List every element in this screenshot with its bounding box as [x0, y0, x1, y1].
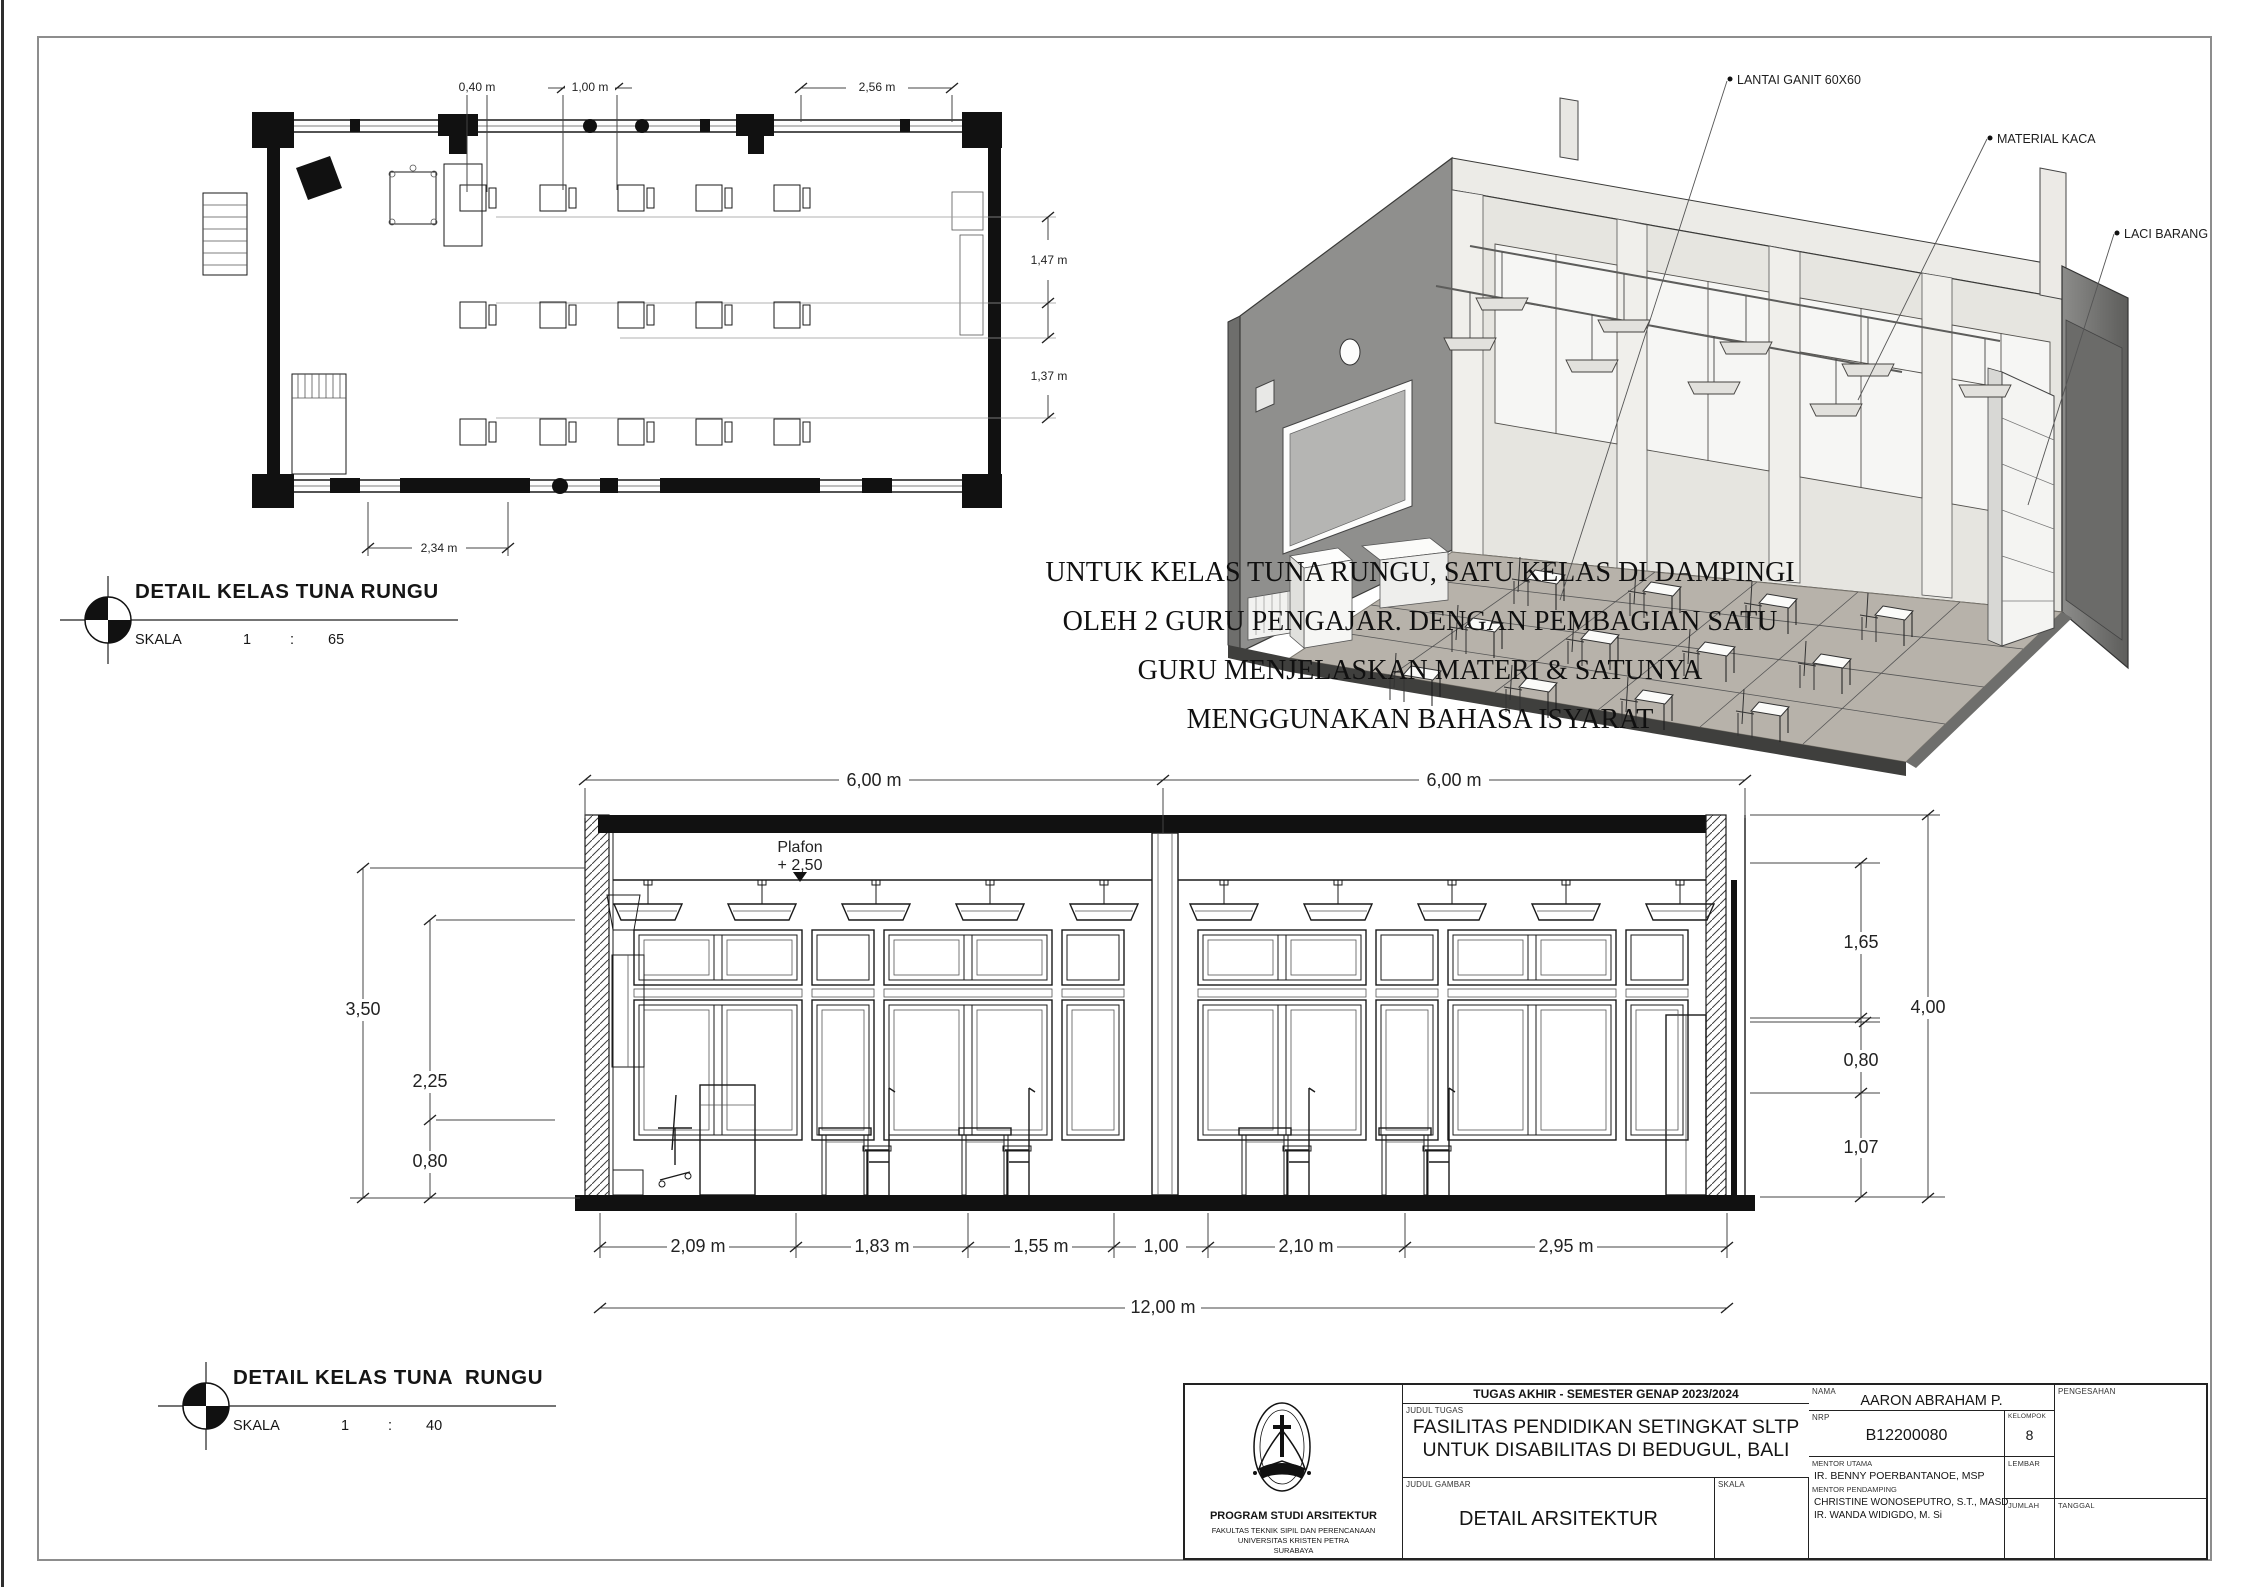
nama-cell: NAMA AARON ABRAHAM P. — [1809, 1385, 2055, 1411]
nrp-cell: NRP B12200080 — [1809, 1411, 2005, 1457]
dim-seg1: 2,09 m — [670, 1236, 725, 1256]
scale-separator: : — [290, 632, 294, 648]
section-dim-left: 3,50 2,25 0,80 — [337, 863, 585, 1203]
dim-h-right-upper: 1,65 — [1843, 932, 1878, 952]
dim-h-right-total: 4,00 — [1910, 997, 1945, 1017]
skala-label: SKALA — [1718, 1480, 1745, 1489]
section-title-group: DETAIL KELAS TUNA RUNGU SKALA 1 : 40 — [136, 1356, 596, 1466]
dim-desk-width: 0,40 m — [459, 80, 496, 94]
scale-label: SKALA — [135, 632, 182, 648]
dim-seg6: 2,95 m — [1538, 1236, 1593, 1256]
axon-clock — [1340, 339, 1360, 365]
note-paragraph: UNTUK KELAS TUNA RUNGU, SATU KELAS DI DA… — [1025, 548, 1815, 744]
titleblock-header: TUGAS AKHIR - SEMESTER GENAP 2023/2024 — [1403, 1385, 1809, 1404]
kelompok-cell: KELOMPOK 8 — [2005, 1411, 2055, 1457]
drawing-title: DETAIL ARSITEKTUR — [1403, 1508, 1714, 1531]
pengesahan-label: PENGESAHAN — [2058, 1387, 2116, 1396]
lembar-cell: LEMBAR — [2005, 1457, 2055, 1499]
title-block: PROGRAM STUDI ARSITEKTUR FAKULTAS TEKNIK… — [1183, 1383, 2208, 1560]
plan-teacher-desk — [389, 165, 437, 225]
student-id: B12200080 — [1809, 1427, 2004, 1445]
dim-h-left-upper: 2,25 — [412, 1071, 447, 1091]
plan-bench — [292, 374, 346, 474]
student-name: AARON ABRAHAM P. — [1809, 1393, 2054, 1409]
dim-seg4: 1,00 — [1143, 1236, 1178, 1256]
dim-h-right-lower: 1,07 — [1843, 1137, 1878, 1157]
mentor-cell: MENTOR UTAMA IR. BENNY POERBANTANOE, MSP… — [1809, 1457, 2005, 1559]
dim-row-gap-upper: 1,47 m — [1031, 253, 1068, 267]
lembar-label: LEMBAR — [2008, 1459, 2040, 1468]
section-dim-right: 1,65 0,80 1,07 4,00 — [1750, 810, 1946, 1203]
callout-floor: LANTAI GANIT 60X60 — [1737, 73, 1861, 87]
dim-seg2: 1,83 m — [854, 1236, 909, 1256]
project-title-line2: UNTUK DISABILITAS DI BEDUGUL, BALI — [1403, 1439, 1809, 1462]
plan-title-group: DETAIL KELAS TUNA RUNGU SKALA 1 : 65 — [38, 570, 498, 680]
plan-stairs — [203, 193, 247, 275]
plan-title: DETAIL KELAS TUNA RUNGU — [135, 580, 439, 604]
section-desks — [819, 1088, 1455, 1195]
jumlah-label: JUMLAH — [2008, 1501, 2039, 1510]
section-drawing: Plafon + 2,50 — [337, 770, 1946, 1317]
judul-gambar-label: JUDUL GAMBAR — [1406, 1480, 1471, 1489]
institution-cell: PROGRAM STUDI ARSITEKTUR FAKULTAS TEKNIK… — [1185, 1385, 1403, 1559]
scale-separator: : — [388, 1418, 392, 1434]
floor-plan: 0,40 m 1,00 m 2,56 m 1,47 m 1,37 m 2,34 … — [203, 80, 1076, 556]
scale-numerator: 1 — [243, 632, 251, 648]
tanggal-label: TANGGAL — [2058, 1501, 2095, 1510]
mentor-utama-name: IR. BENNY POERBANTANOE, MSP — [1814, 1470, 1985, 1482]
dim-aisle: 1,00 m — [572, 80, 609, 94]
faculty-name: FAKULTAS TEKNIK SIPIL DAN PERENCANAAN — [1185, 1526, 1402, 1535]
tanggal-cell: TANGGAL — [2055, 1499, 2208, 1559]
plan-desks — [460, 185, 810, 445]
scale-value: 65 — [328, 632, 344, 648]
city-name: SURABAYA — [1185, 1546, 1402, 1555]
project-title-line1: FASILITAS PENDIDIKAN SETINGKAT SLTP — [1403, 1416, 1809, 1439]
scale-numerator: 1 — [341, 1418, 349, 1434]
dim-row-gap-lower: 1,37 m — [1031, 369, 1068, 383]
mentor-utama-label: MENTOR UTAMA — [1812, 1459, 1872, 1468]
note-line: MENGGUNAKAN BAHASA ISYARAT — [1025, 695, 1815, 744]
jumlah-cell: JUMLAH — [2005, 1499, 2055, 1559]
axon-cabinet — [1988, 368, 2054, 646]
nrp-label: NRP — [1812, 1413, 1830, 1422]
scale-label: SKALA — [233, 1418, 280, 1434]
judul-tugas-cell: JUDUL TUGAS FASILITAS PENDIDIKAN SETINGK… — [1403, 1404, 1809, 1478]
mentor-pendamping-label: MENTOR PENDAMPING — [1812, 1485, 1897, 1494]
dim-h-left-lower: 0,80 — [412, 1151, 447, 1171]
dim-back-zone: 2,34 m — [421, 541, 458, 555]
program-name: PROGRAM STUDI ARSITEKTUR — [1185, 1510, 1402, 1522]
dim-seg3: 1,55 m — [1013, 1236, 1068, 1256]
mentor-pendamping-name2: IR. WANDA WIDIGDO, M. Si — [1814, 1510, 1942, 1521]
judul-tugas-label: JUDUL TUGAS — [1406, 1406, 1463, 1415]
group-number: 8 — [2005, 1427, 2054, 1443]
dim-h-right-mid: 0,80 — [1843, 1050, 1878, 1070]
skala-cell: SKALA — [1715, 1478, 1809, 1559]
petra-logo — [1185, 1385, 1403, 1505]
dim-span-left: 6,00 m — [846, 770, 901, 790]
pengesahan-cell: PENGESAHAN — [2055, 1385, 2208, 1499]
mentor-pendamping-name1: CHRISTINE WONOSEPUTRO, S.T., MASD — [1814, 1497, 2008, 1508]
judul-gambar-cell: JUDUL GAMBAR DETAIL ARSITEKTUR — [1403, 1478, 1715, 1559]
note-line: OLEH 2 GURU PENGAJAR. DENGAN PEMBAGIAN S… — [1025, 597, 1815, 646]
drawing-canvas: 0,40 m 1,00 m 2,56 m 1,47 m 1,37 m 2,34 … — [0, 0, 2245, 1587]
dim-span-right: 6,00 m — [1426, 770, 1481, 790]
dim-total: 12,00 m — [1130, 1297, 1195, 1317]
callout-drawer: LACI BARANG — [2124, 227, 2208, 241]
dim-seg5: 2,10 m — [1278, 1236, 1333, 1256]
plafon-label: Plafon — [777, 839, 822, 856]
university-name: UNIVERSITAS KRISTEN PETRA — [1185, 1536, 1402, 1545]
section-dim-bottom: 2,09 m 1,83 m 1,55 m 1,00 2,10 m 2,95 m … — [594, 1213, 1733, 1317]
scale-value: 40 — [426, 1418, 442, 1434]
note-line: GURU MENJELASKAN MATERI & SATUNYA — [1025, 646, 1815, 695]
dim-front-zone: 2,56 m — [859, 80, 896, 94]
plafon-level: + 2,50 — [778, 857, 823, 874]
callout-glass: MATERIAL KACA — [1997, 132, 2096, 146]
note-line: UNTUK KELAS TUNA RUNGU, SATU KELAS DI DA… — [1025, 548, 1815, 597]
plan-teacher-chair — [296, 156, 342, 200]
dim-h-left-total: 3,50 — [345, 999, 380, 1019]
kelompok-label: KELOMPOK — [2008, 1413, 2046, 1420]
section-title: DETAIL KELAS TUNA RUNGU — [233, 1366, 543, 1390]
plan-cabinet — [444, 164, 482, 246]
